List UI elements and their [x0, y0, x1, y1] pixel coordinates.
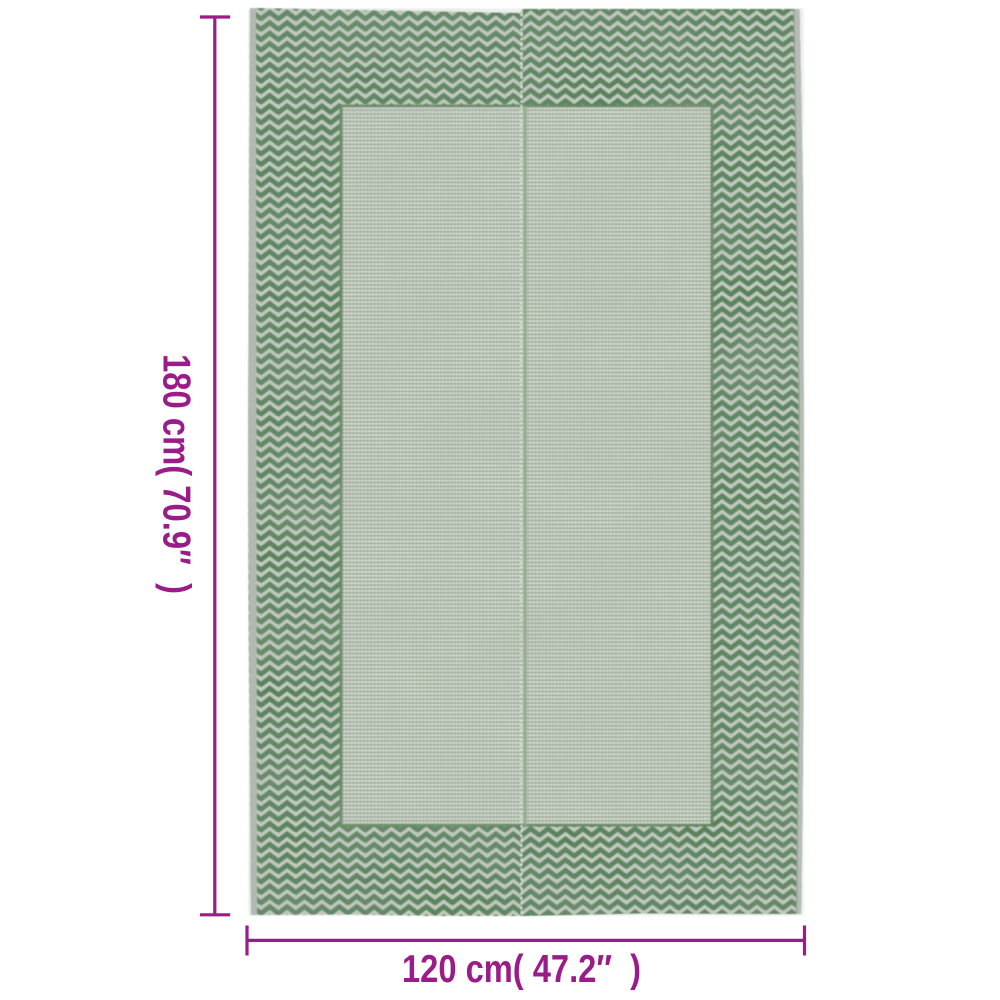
svg-text:120 cm( 47.2″ ): 120 cm( 47.2″ ): [402, 948, 641, 991]
svg-text:180 cm( 70.9″ ): 180 cm( 70.9″ ): [155, 354, 198, 594]
